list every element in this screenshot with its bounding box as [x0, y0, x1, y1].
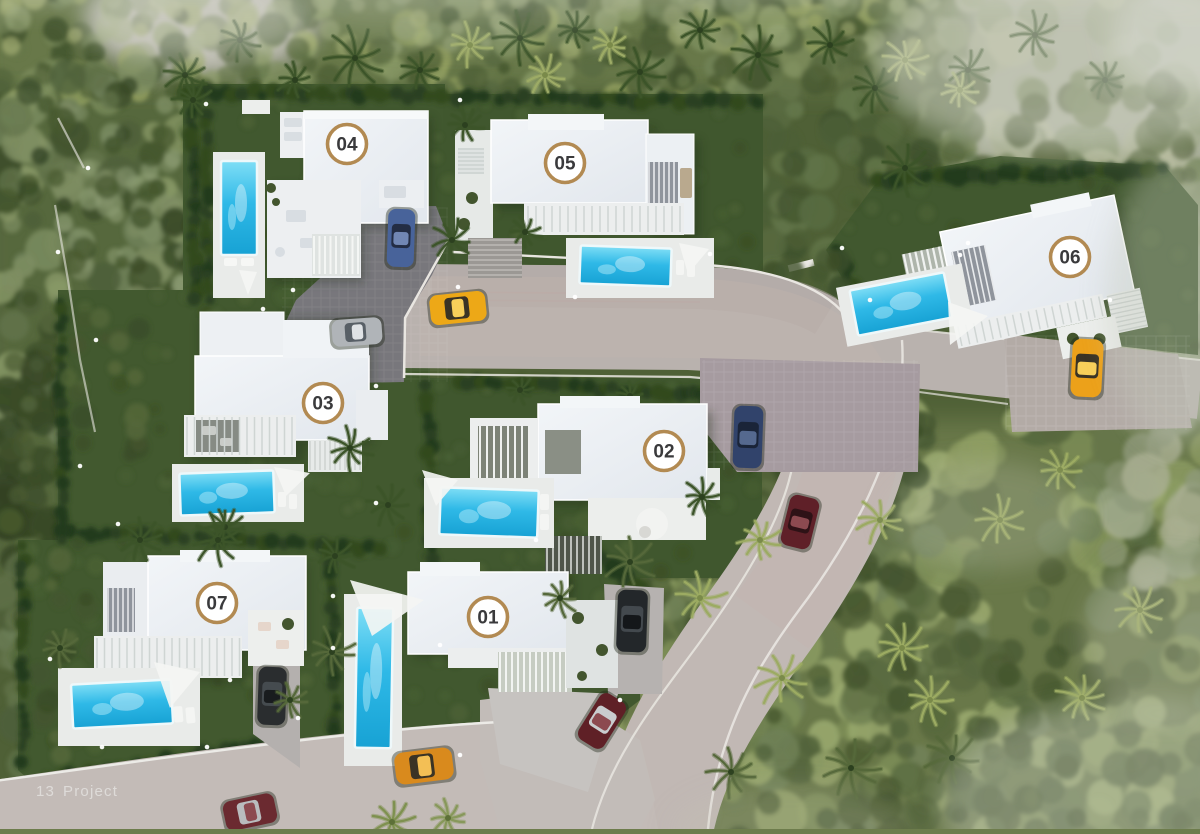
svg-text:Project: Project [63, 783, 118, 800]
svg-text:02: 02 [653, 442, 674, 463]
svg-text:13: 13 [36, 783, 55, 800]
svg-text:05: 05 [554, 154, 576, 175]
svg-text:01: 01 [477, 608, 499, 629]
svg-text:04: 04 [336, 135, 358, 156]
svg-text:06: 06 [1059, 248, 1080, 269]
svg-text:03: 03 [312, 394, 333, 415]
svg-text:07: 07 [206, 594, 227, 615]
